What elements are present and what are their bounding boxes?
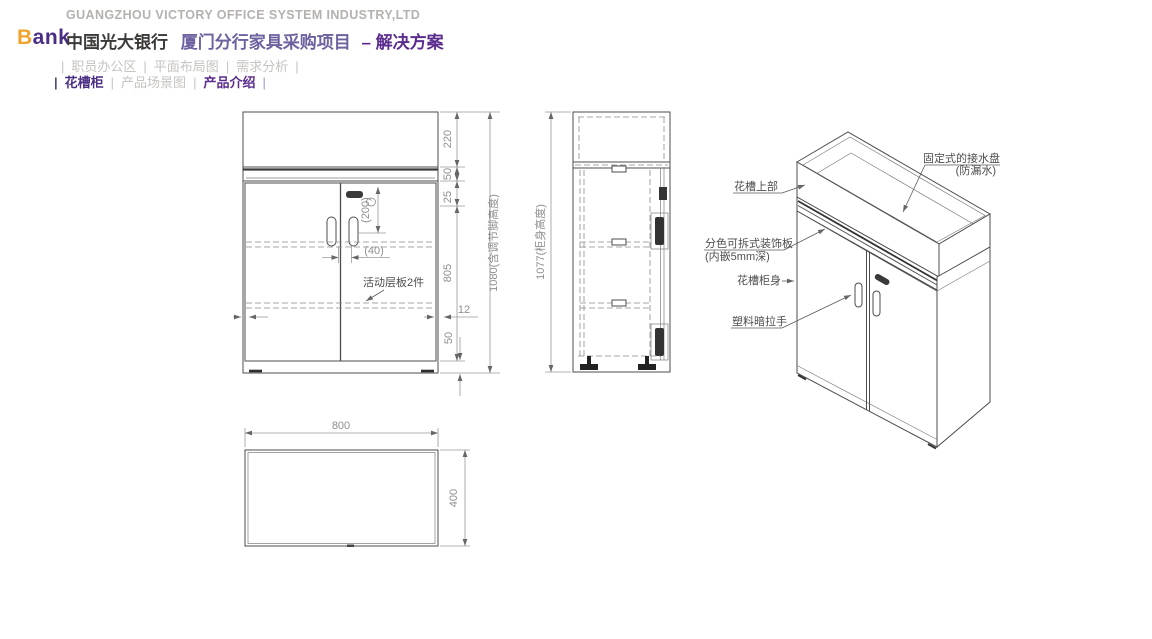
shelf-support [612, 166, 626, 172]
label-water-tray: 固定式的接水盘 [923, 151, 1000, 165]
shelf-support [612, 300, 626, 306]
iso-view: 固定式的接水盘 (防漏水) 花槽上部 分色可拆式装饰板 (内嵌5mm深) 花槽柜… [704, 132, 1000, 449]
dim-805: 805 [442, 264, 454, 282]
dim-200: (200) [360, 197, 372, 223]
dim-1080: 1080(含调节脚高度) [486, 194, 500, 292]
adjustable-foot [587, 356, 591, 365]
dim-50-base: 50 [443, 332, 455, 344]
label-trough-top: 花槽上部 [734, 179, 778, 193]
dim-400: 400 [448, 489, 460, 507]
lock-mechanism [659, 187, 667, 200]
dim-25: 25 [442, 191, 454, 203]
lower-hinge [655, 328, 664, 356]
side-view: 1077(柜身高度) [533, 112, 670, 372]
center-mark [347, 545, 354, 548]
label-plastic-handle: 塑料暗拉手 [732, 314, 787, 328]
front-view: 活动层板2件 (200) (40) 12 [233, 112, 500, 396]
dim-220: 220 [442, 130, 454, 148]
dim-1077: 1077(柜身高度) [533, 204, 547, 280]
label-decor-panel-note: (内嵌5mm深) [705, 249, 770, 263]
upper-hinge [655, 217, 664, 245]
label-decor-panel: 分色可拆式装饰板 [705, 236, 793, 250]
lock-icon [346, 191, 363, 198]
dim-50: 50 [442, 168, 454, 180]
slide: GUANGZHOU VICTORY OFFICE SYSTEM INDUSTRY… [0, 0, 1152, 639]
adjustable-foot [580, 364, 598, 370]
dim-12: 12 [458, 304, 470, 316]
shelf-support [612, 239, 626, 245]
dim-40: (40) [364, 245, 384, 257]
shelf-note-label: 活动层板2件 [363, 275, 424, 289]
label-cabinet-body: 花槽柜身 [737, 273, 781, 287]
dim-800: 800 [332, 420, 350, 432]
adjustable-foot [638, 364, 656, 370]
technical-drawing: 活动层板2件 (200) (40) 12 [0, 0, 1152, 639]
adjustable-foot [645, 356, 649, 365]
plan-view: 800 400 [245, 420, 470, 547]
cabinet-body-side [937, 247, 990, 447]
